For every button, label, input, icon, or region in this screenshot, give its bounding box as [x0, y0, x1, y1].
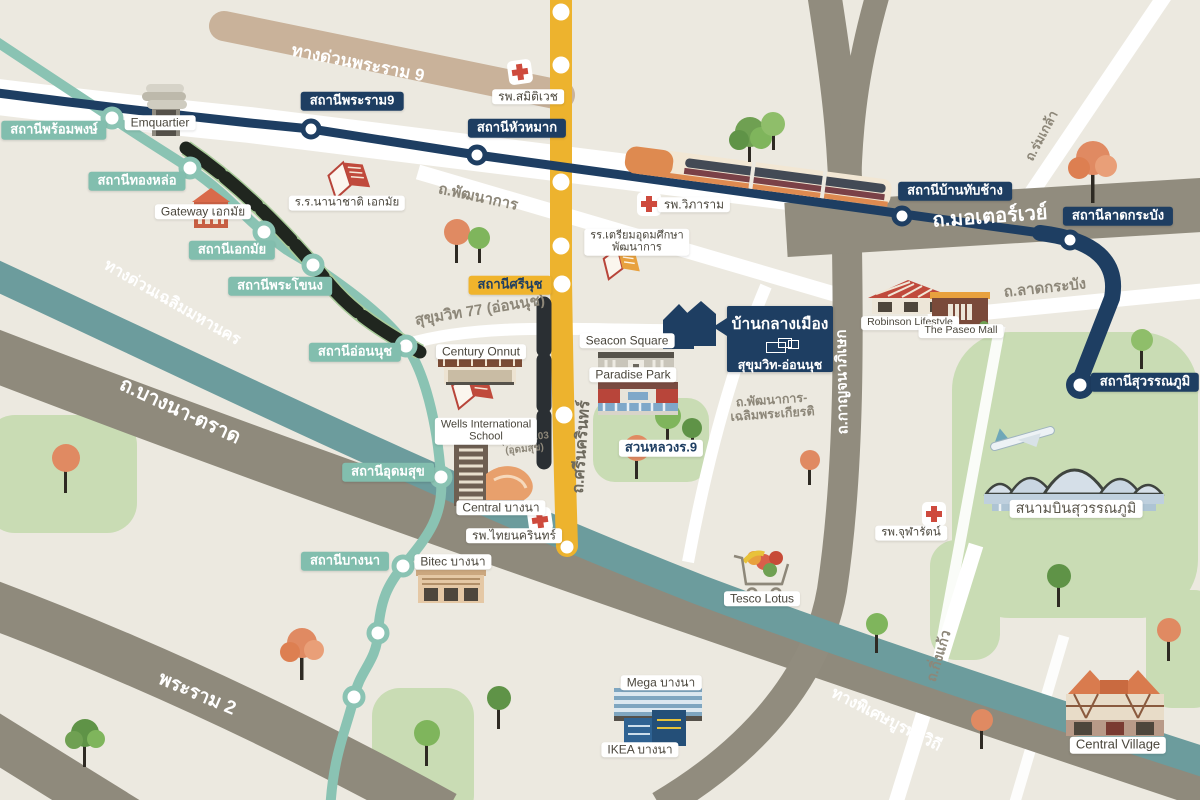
ekkamai-school-label: ร.ร.นานาชาติ เอกมัย: [289, 196, 405, 211]
station-rama9: สถานีพระราม9: [301, 92, 404, 111]
central-bangna-label: Central บางนา: [456, 500, 545, 515]
paradise-park-building: [598, 382, 678, 415]
samitivej-hospital-icon: [506, 58, 533, 85]
suvarnabhumi-station-marker: [1066, 371, 1094, 399]
brand-logo-icon: [760, 338, 800, 354]
station-banthapchang: สถานีบ้านทับช้าง: [898, 182, 1012, 201]
station-thonglor: สถานีทองหล่อ: [88, 172, 185, 191]
station-srinut: สถานีศรีนุช: [469, 276, 552, 295]
ikea-bangna-label: IKEA บางนา: [601, 742, 678, 757]
station-latkrabang: สถานีลาดกระบัง: [1063, 207, 1173, 226]
srinakarin-yellow-line: [561, 0, 567, 546]
paradise-park-label: Paradise Park: [589, 367, 676, 382]
tesco-lotus-label: Tesco Lotus: [724, 591, 800, 606]
triam-udom-label: รร.เตรียมอุดมศึกษาพัฒนาการ: [584, 229, 689, 256]
project-title: บ้านกลางเมือง: [727, 311, 833, 336]
suanluang-label: สวนหลวงร.9: [619, 440, 703, 457]
station-phrakhanong: สถานีพระโขนง: [228, 277, 332, 296]
mega-bangna-label: Mega บางนา: [621, 675, 702, 690]
location-map: ทางด่วนพระราม 9 ถ.มอเตอร์เวย์ ทางด่วนเฉล…: [0, 0, 1200, 800]
callout-pointer: [713, 318, 727, 336]
chularat-label: รพ.จุฬารัตน์: [875, 526, 947, 541]
station-huamak: สถานีหัวหมาก: [468, 119, 566, 138]
wells-school-label: Wells InternationalSchool: [435, 418, 537, 445]
station-bangna: สถานีบางนา: [301, 552, 389, 571]
century-onnut-label: Century Onnut: [436, 344, 526, 359]
bitec-building: [416, 570, 486, 603]
station-udomsuk: สถานีอุดมสุข: [342, 463, 434, 482]
paseo-mall-label: The Paseo Mall: [919, 324, 1004, 338]
century-onnut-building: [438, 358, 522, 385]
samitivej-label: รพ.สมิติเวช: [492, 89, 564, 104]
station-onnut: สถานีอ่อนนุช: [309, 343, 401, 362]
thainakarin-label: รพ.ไทยนครินทร์: [466, 528, 562, 543]
central-village-label: Central Village: [1070, 737, 1166, 754]
chularat-hospital-icon: [922, 502, 946, 526]
emquartier-label: Emquartier: [125, 115, 196, 130]
seacon-square-label: Seacon Square: [580, 333, 675, 348]
project-callout: บ้านกลางเมือง สุขุมวิท-อ่อนนุช: [727, 306, 833, 372]
pattanakarn-chalermprakiat-label: ถ.พัฒนาการ-เฉลิมพระเกียรติ: [729, 390, 815, 424]
station-suvarnabhumi: สถานีสุวรรณภูมิ: [1091, 373, 1199, 392]
vibharam-label: รพ.วิภาราม: [658, 197, 730, 212]
gateway-label: Gateway เอกมัย: [155, 204, 251, 219]
project-subtitle: สุขุมวิท-อ่อนนุช: [727, 355, 833, 375]
station-ekkamai: สถานีเอกมัย: [189, 241, 275, 260]
bitec-label: Bitec บางนา: [414, 554, 491, 569]
station-phromphong: สถานีพร้อมพงษ์: [1, 121, 106, 140]
kanchanapisek-label: ถ.กาญจนาภิเษก: [834, 329, 853, 434]
airport-label: สนามบินสุวรรณภูมิ: [1010, 500, 1143, 518]
